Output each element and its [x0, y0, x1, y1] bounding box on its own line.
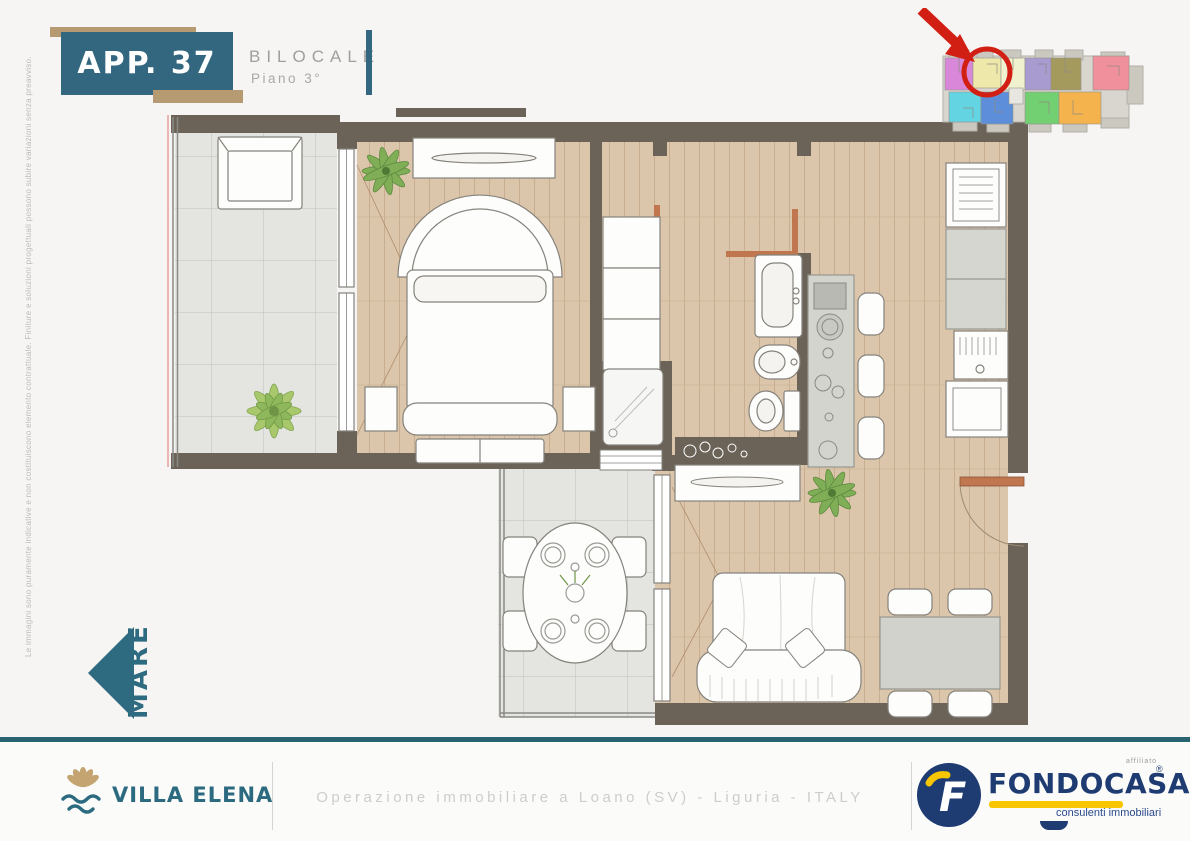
plant-terrace: [247, 384, 301, 438]
bed-pillow: [414, 276, 546, 302]
agency-tagline: consulenti immobiliari: [1056, 807, 1161, 819]
shower: [603, 369, 663, 445]
villa-elena-logo-icon: [55, 763, 111, 821]
svg-text:F: F: [939, 775, 966, 821]
utility-panel: [678, 439, 758, 463]
agency-affiliation: affiliato: [1126, 758, 1157, 765]
header-divider: [366, 30, 372, 95]
window: [600, 450, 662, 470]
building-key-plan: [915, 8, 1150, 143]
floor-label: Piano 3°: [251, 71, 322, 86]
developer-name: VILLA ELENA: [112, 783, 273, 807]
kitchen-sink: [954, 331, 1008, 379]
floor-plan-brochure: { "page": { "background": "#f6f5f3" }, "…: [0, 0, 1190, 841]
highlight-arrow-icon: [921, 10, 975, 62]
terrace-sofa: [218, 137, 302, 209]
nightstand-right: [563, 387, 595, 431]
fridge: [946, 163, 1006, 227]
apartment-type-label: BILOCALE: [249, 47, 380, 67]
apartment-badge: APP. 37: [61, 32, 233, 95]
nightstand-left: [365, 387, 397, 431]
oven: [946, 381, 1008, 437]
kitchen-island: [808, 275, 854, 467]
legal-disclaimer: Le immagini sono puramente indicative e …: [24, 112, 38, 657]
terrace-dining-set: [503, 523, 646, 663]
dining-table: [880, 617, 1000, 689]
toilet-tank: [784, 391, 800, 431]
floor-plan: [160, 105, 1050, 740]
footer-divider-left: [272, 762, 273, 830]
wardrobe: [603, 217, 660, 370]
island-stools: [858, 293, 884, 459]
kitchen-appliances: [946, 163, 1008, 437]
fondocasa-logo-icon: F: [915, 761, 983, 829]
bed-footboard: [403, 403, 557, 435]
badge-bottom-bar: [153, 90, 243, 103]
oval-table: [523, 523, 627, 663]
location-text: Operazione immobiliare a Loano (SV) - Li…: [300, 789, 880, 806]
registered-mark: ®: [1156, 764, 1163, 774]
footer-divider-right: [911, 762, 912, 830]
